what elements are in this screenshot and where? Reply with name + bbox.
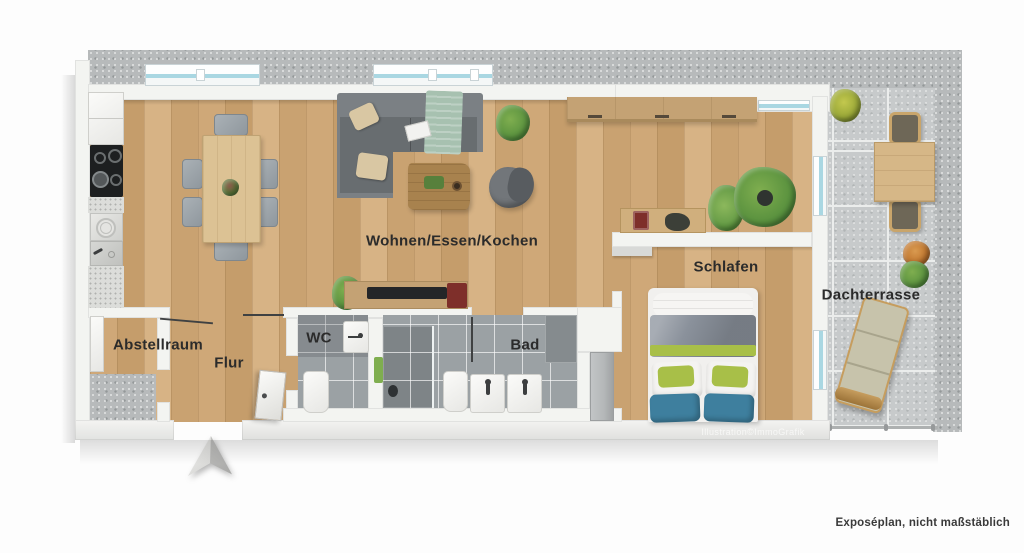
exterior-concrete-right — [933, 50, 962, 432]
room-label-bathroom: Bad — [510, 337, 539, 354]
bath-sink — [507, 374, 542, 413]
wall-bottom-left — [75, 420, 174, 440]
dining-chair — [182, 159, 203, 189]
bath-dark-niche — [545, 315, 577, 363]
bedroom-window — [813, 330, 827, 390]
entrance-door-leaf — [255, 370, 287, 422]
sofa-throw-blanket — [424, 90, 463, 154]
towel — [374, 357, 383, 383]
terrace-chair — [889, 112, 921, 145]
plate-stack — [90, 213, 123, 241]
kitchen-cabinet-divider — [89, 118, 123, 119]
window-mullion — [428, 69, 437, 81]
wall-bath-bedroom-chunk — [577, 307, 622, 352]
wc-toilet — [303, 371, 329, 413]
pan-on-burner — [92, 171, 109, 188]
plan-drop-shadow — [80, 440, 938, 464]
dining-chair — [182, 197, 203, 227]
kitchen-sink — [90, 241, 123, 266]
hifi-appliance — [447, 283, 467, 308]
bedroom-closet — [590, 352, 614, 421]
room-label-wc: WC — [306, 330, 332, 347]
room-label-terrace: Dachterrasse — [822, 287, 921, 304]
coffee-table-cup — [452, 181, 462, 191]
window-top-3 — [758, 100, 810, 111]
lounger-seam — [847, 361, 890, 375]
burner — [110, 174, 122, 186]
burner — [94, 152, 106, 164]
desk-object — [665, 213, 690, 231]
wall-shelf — [612, 247, 652, 256]
wardrobe-cabinet-row — [567, 97, 757, 122]
terrace-bush-yellow — [830, 89, 861, 122]
burner — [108, 149, 122, 163]
plate — [100, 222, 112, 234]
sofa-pillow — [355, 152, 388, 181]
terrace-chair — [889, 199, 921, 232]
shower-glass — [432, 326, 434, 408]
potted-plant — [496, 105, 530, 141]
faucet-icon — [522, 379, 528, 385]
cooktop — [90, 145, 123, 197]
cabinet-handle — [722, 115, 736, 118]
shower-head — [388, 385, 398, 397]
terrace-door-window — [813, 156, 827, 216]
bath-sink — [470, 374, 505, 413]
bed-pillow-green — [711, 365, 748, 388]
bath-toilet — [443, 371, 468, 412]
floor-plan: Wohnen/Essen/Kochen Schlafen Dachterrass… — [0, 0, 1024, 553]
room-label-storage: Abstellraum — [113, 337, 203, 354]
wc-door-leaf — [243, 314, 284, 316]
kitchen-counter — [88, 266, 124, 308]
storage-floor-patch — [90, 374, 156, 420]
faucet-icon — [485, 379, 491, 385]
table-centerpiece-plant — [222, 179, 239, 196]
tv-screen — [367, 287, 447, 299]
door-handle — [262, 393, 267, 398]
wc-sink — [343, 321, 369, 353]
dining-chair — [214, 114, 248, 136]
bed-pillow-blue — [650, 393, 701, 423]
bed-green-stripe — [650, 345, 756, 356]
room-label-living: Wohnen/Essen/Kochen — [366, 233, 538, 250]
window-mullion — [196, 69, 205, 81]
watermark: Illustration©ImmoGrafik — [701, 427, 804, 437]
railing-post — [931, 424, 935, 431]
faucet-icon — [93, 248, 103, 255]
coffee-machine — [633, 211, 649, 230]
terrace-railing — [827, 426, 938, 429]
bed-pillow-blue — [704, 393, 755, 423]
room-label-hallway: Flur — [214, 355, 244, 372]
bed-folded-blanket — [653, 293, 753, 317]
cabinet-handle — [588, 115, 602, 118]
coffee-table-tray — [424, 176, 444, 189]
plant-pot — [757, 190, 773, 206]
terrace-table — [874, 142, 935, 202]
window-mullion — [470, 69, 479, 81]
drain — [108, 251, 115, 258]
wall-living-bedroom — [612, 232, 812, 247]
plan-drop-shadow-left — [61, 75, 75, 443]
storage-cabinet — [90, 316, 104, 372]
bed-pillow-green — [657, 365, 694, 388]
wall-storage-right-b — [157, 402, 170, 422]
disclaimer-text: Exposéplan, nicht maßstäblich — [835, 517, 1010, 529]
lounger-seam — [856, 329, 899, 343]
room-label-sleeping: Schlafen — [694, 259, 759, 276]
cabinet-handle — [655, 115, 669, 118]
kitchen-counter — [88, 197, 124, 213]
wall-wc-left-a — [286, 318, 298, 356]
bath-door-leaf — [471, 317, 473, 362]
terrace-bush-green — [900, 261, 929, 288]
faucet-icon — [358, 333, 363, 338]
railing-post — [884, 424, 888, 431]
